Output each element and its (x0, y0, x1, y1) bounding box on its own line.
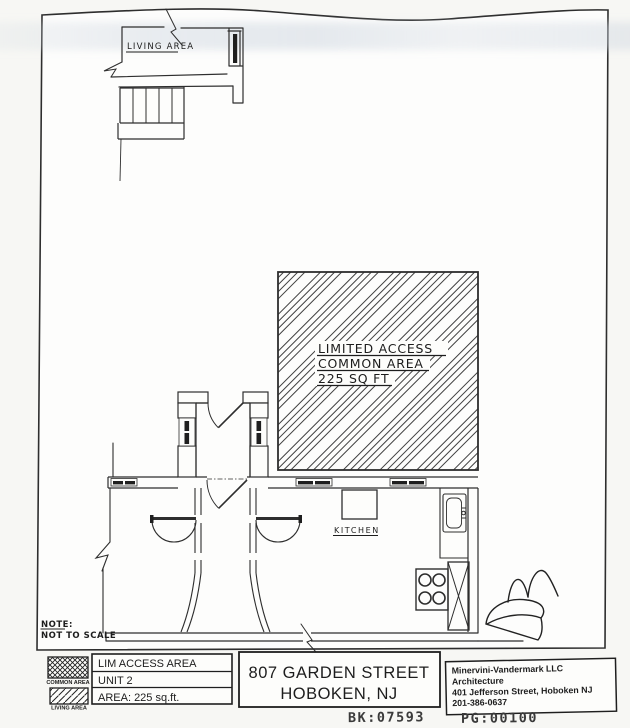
hatch-label-line1: LIMITED ACCESS (318, 341, 433, 356)
titleblock-address-box: 807 GARDEN STREET HOBOKEN, NJ (239, 652, 440, 707)
window-glyph (179, 418, 195, 446)
architect-line2: Architecture (452, 676, 504, 687)
area-box-line1: LIM ACCESS AREA (98, 658, 197, 670)
area-box-line3: AREA: 225 sq.ft. (98, 692, 179, 704)
window-glyph (251, 418, 267, 446)
address-line1: 807 GARDEN STREET (249, 664, 430, 682)
scanned-floor-plan-page: LIVING AREA LIMITED ACCESS COMMON AREA 2… (0, 0, 630, 728)
area-box-line2: UNIT 2 (98, 675, 133, 687)
address-line2: HOBOKEN, NJ (280, 685, 397, 703)
legend-living-area-label: LIVING AREA (51, 706, 87, 712)
window-glyph (296, 479, 332, 487)
window-glyph (233, 34, 237, 63)
scan-shadow-band (0, 22, 630, 50)
legend-living-area: LIVING AREA (50, 688, 88, 712)
kitchen-island (342, 490, 377, 519)
floor-plan-drawing: LIVING AREA LIMITED ACCESS COMMON AREA 2… (0, 0, 630, 728)
legend-common-area: COMMON AREA (46, 657, 89, 686)
limited-access-common-area: LIMITED ACCESS COMMON AREA 225 SQ FT (278, 272, 478, 470)
bk-stamp: BK:07593 (348, 709, 425, 726)
kitchen-label: KITCHEN (334, 526, 380, 535)
legend: COMMON AREA LIVING AREA (46, 657, 89, 712)
legend-common-area-label: COMMON AREA (46, 680, 89, 686)
living-area-label: LIVING AREA (127, 42, 194, 52)
architect-line4: 201-386-0637 (452, 697, 507, 708)
hatch-label-line3: 225 SQ FT (318, 371, 389, 386)
window-glyph (111, 479, 137, 487)
hatch-label-line2: COMMON AREA (318, 356, 424, 371)
note-text: NOT TO SCALE (41, 631, 116, 641)
titleblock-area-box: LIM ACCESS AREA UNIT 2 AREA: 225 sq.ft. (92, 654, 232, 704)
titleblock-architect-box: Minervini-Vandermark LLC Architecture 40… (445, 658, 616, 715)
window-glyph (390, 479, 426, 487)
pg-stamp: PG:00100 (461, 710, 538, 727)
